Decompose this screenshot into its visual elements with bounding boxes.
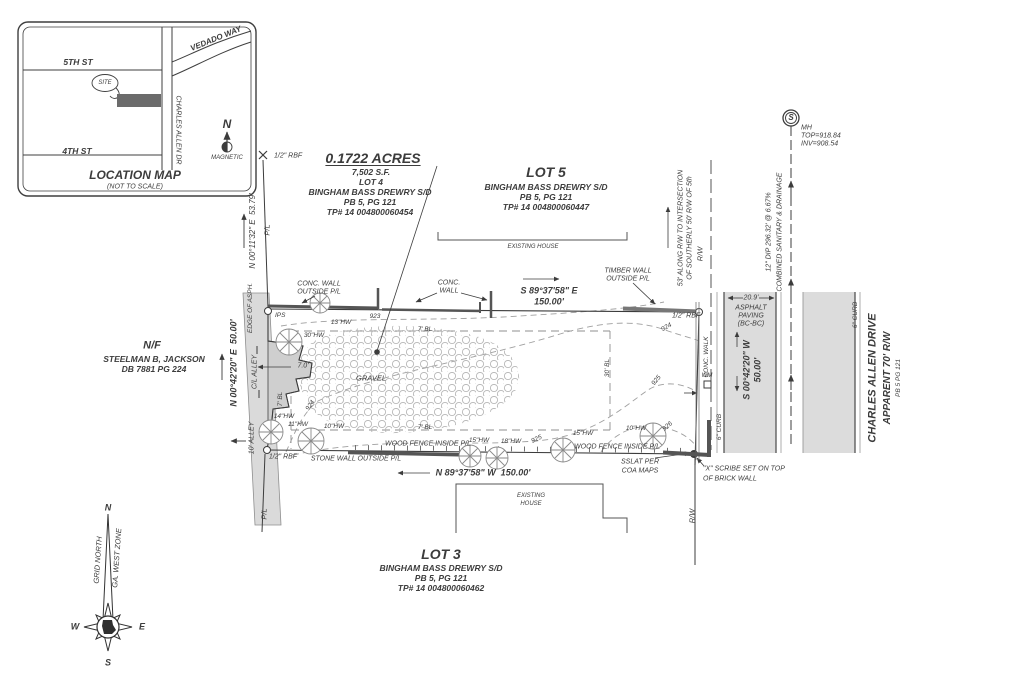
lot3-name: LOT 3 (421, 547, 461, 561)
adjoiner-nf: N/F (143, 341, 161, 352)
map-title: LOCATION MAP (89, 169, 181, 181)
adjoiner-name: STEELMAN B, JACKSON (103, 355, 205, 364)
lot5-plat: PB 5, PG 121 (520, 193, 572, 202)
dim-pl-north: N 00°11'32" E 53.79' (249, 193, 257, 268)
manhole-top: TOP=918.84 (801, 133, 841, 140)
asphalt-label1: ASPHALT (735, 305, 766, 312)
manhole-inv: INV=908.54 (801, 141, 838, 148)
map-street-charles-allen: CHARLES ALLEN DR (175, 96, 182, 165)
wm-label: WM (702, 373, 713, 379)
asphalt-label2: PAVING (738, 313, 764, 320)
pl-south-label: P/L (260, 508, 268, 519)
dim-north-bearing: S 89°37'58" E (520, 287, 577, 296)
survey-sheet: 5TH ST4TH STCHARLES ALLEN DRVEDADO WAYSI… (0, 0, 1024, 681)
manhole-letter: S (788, 114, 793, 122)
lot4-name: LOT 4 (359, 178, 383, 187)
street-plat: PB 5 PG 121 (896, 359, 903, 397)
rw-note-line1: 53' ALONG R/W TO INTERSECTION (678, 170, 685, 286)
rw-north-label: R/W (696, 247, 704, 262)
tree-10hw-east-label: 10"HW (626, 426, 646, 433)
rbf-southwest: 1/2" RBF (269, 454, 297, 461)
dim-east-distance: 50.00' (754, 358, 763, 383)
lot5-name: LOT 5 (526, 165, 566, 179)
bl-west-label: 7' BL (278, 392, 285, 407)
bl-south-label: 7' BL (418, 425, 433, 432)
asphalt-width: 20.9' (744, 295, 759, 302)
existing-house-south-line2: HOUSE (520, 501, 541, 507)
timber-wall-label1: TIMBER WALL (604, 268, 651, 275)
conc-wall-mid-label1: CONC. (438, 280, 461, 287)
tree-11hw-label: 11"HW (288, 422, 308, 429)
lot4-sf: 7,502 S.F. (352, 168, 390, 177)
contour-924-label-east: 924 (661, 322, 674, 333)
compass-e: E (139, 623, 145, 632)
edge-of-asphalt-label: EDGE OF ASPH. (248, 283, 255, 333)
contour-924-label-west: 924 (305, 400, 317, 413)
dim-south: N 89°37'58" W 150.00' (436, 469, 531, 478)
alley-width-label: 10' ALLEY (249, 422, 256, 455)
map-north-letter: N (223, 118, 232, 130)
rw-note-line2: OF SOUTHERLY 50' R/W OF 5th (687, 176, 694, 279)
lot4-parcel: TP# 14 004800060454 (327, 208, 414, 217)
lot5-parcel: TP# 14 004800060447 (503, 203, 590, 212)
rbf-northwest: 1/2" RBF (274, 153, 302, 160)
tree-13hw-label: 13"HW (331, 320, 351, 327)
scribe-note-line2: OF BRICK WALL (703, 476, 757, 483)
compass-w: W (71, 623, 80, 632)
tree-10hw-west-label: 10"HW (324, 424, 344, 431)
sslat-label1: SSLAT PER (621, 459, 659, 466)
compass-s: S (105, 659, 111, 668)
pl-north: P/L (263, 224, 271, 235)
street-rw: APPARENT 70' R/W (883, 332, 893, 425)
contour-925-label-east: 925 (651, 375, 663, 387)
wood-fence-east-label: WOOD FENCE INSIDE P/L (574, 444, 660, 451)
conc-wall-west-label2: OUTSIDE P/L (297, 289, 341, 296)
stone-wall-label: STONE WALL OUTSIDE P/L (311, 456, 401, 463)
compass-n: N (105, 504, 112, 513)
lot4-plat: PB 5, PG 121 (344, 198, 396, 207)
tree-30hw-label: 30"HW (304, 333, 324, 340)
existing-house-north-label: EXISTING HOUSE (507, 244, 558, 250)
conc-wall-west-label1: CONC. WALL (297, 281, 340, 288)
lot4-acres: 0.1722 ACRES (325, 151, 420, 165)
tree-15hw-east-label: 15"HW (573, 431, 593, 438)
map-street-5th: 5TH ST (63, 58, 92, 67)
bl-north-label: 7' BL (418, 327, 433, 334)
map-street-4th: 4TH ST (62, 147, 91, 156)
map-subtitle: (NOT TO SCALE) (107, 184, 163, 191)
contour-923-label: 923 (370, 314, 381, 321)
compass-grid-north: GRID NORTH (93, 536, 104, 584)
bl-east-label: 30' BL (605, 359, 612, 377)
lot5-subdivision: BINGHAM BASS DREWRY S/D (485, 183, 608, 192)
dim-west-bearing: N 00°42'20" E 50.00' (230, 319, 239, 406)
ips-north-label: IPS (275, 313, 285, 320)
rw-south-label: R/W (688, 509, 696, 524)
manhole-mh: MH (801, 125, 812, 132)
contour-925-label-west: 925 (531, 435, 544, 445)
map-street-vedado: VEDADO WAY (189, 25, 242, 53)
map-site-label: SITE (98, 80, 111, 86)
contour-926-label: 926 (662, 421, 674, 433)
existing-house-south-line1: EXISTING (517, 493, 545, 499)
lot3-plat: PB 5, PG 121 (415, 574, 467, 583)
street-name: CHARLES ALLEN DRIVE (868, 313, 879, 442)
timber-wall-label2: OUTSIDE P/L (606, 276, 650, 283)
map-north-magnetic: MAGNETIC (211, 155, 243, 161)
tree-14hw-label: 14"HW (274, 414, 294, 421)
sewer-pipe-note: 12" DIP 296.32' @ 6.67% (766, 192, 773, 271)
conc-walk-label: CONC. WALK (704, 336, 711, 377)
scribe-note-line1: "X" SCRIBE SET ON TOP (703, 466, 785, 473)
gravel-label: GRAVEL (356, 374, 386, 382)
dim-east-bearing: S 00°42'20" W (743, 340, 752, 400)
dim-north-distance: 150.00' (534, 298, 564, 307)
lot3-subdivision: BINGHAM BASS DREWRY S/D (380, 564, 503, 573)
rbf-northeast: 1/2" RBF (672, 313, 700, 320)
sslat-label2: COA MAPS (622, 468, 659, 475)
annotation-labels: 5TH ST4TH STCHARLES ALLEN DRVEDADO WAYSI… (0, 0, 1024, 681)
curb-west-label: 6" CURB (717, 414, 724, 440)
lot4-subdivision: BINGHAM BASS DREWRY S/D (309, 188, 432, 197)
cl-alley-label: C/L ALLEY (252, 355, 259, 389)
adjoiner-deed: DB 7881 PG 224 (122, 365, 187, 374)
dim-alley-offset: 7.0' (297, 363, 308, 370)
compass-zone: GA. WEST ZONE (111, 528, 123, 588)
asphalt-label3: (BC-BC) (738, 321, 764, 328)
tree-18hw-label: 18"HW (501, 439, 521, 446)
lot3-parcel: TP# 14 004800060462 (398, 584, 485, 593)
wood-fence-west-label: WOOD FENCE INSIDE P/L (385, 441, 471, 448)
sewer-type-note: COMBINED SANITARY & DRAINAGE (777, 173, 784, 292)
curb-east-label: 6" CURB (853, 302, 860, 328)
conc-wall-mid-label2: WALL (440, 288, 459, 295)
tree-15hw-west-label: 15"HW (469, 438, 489, 445)
